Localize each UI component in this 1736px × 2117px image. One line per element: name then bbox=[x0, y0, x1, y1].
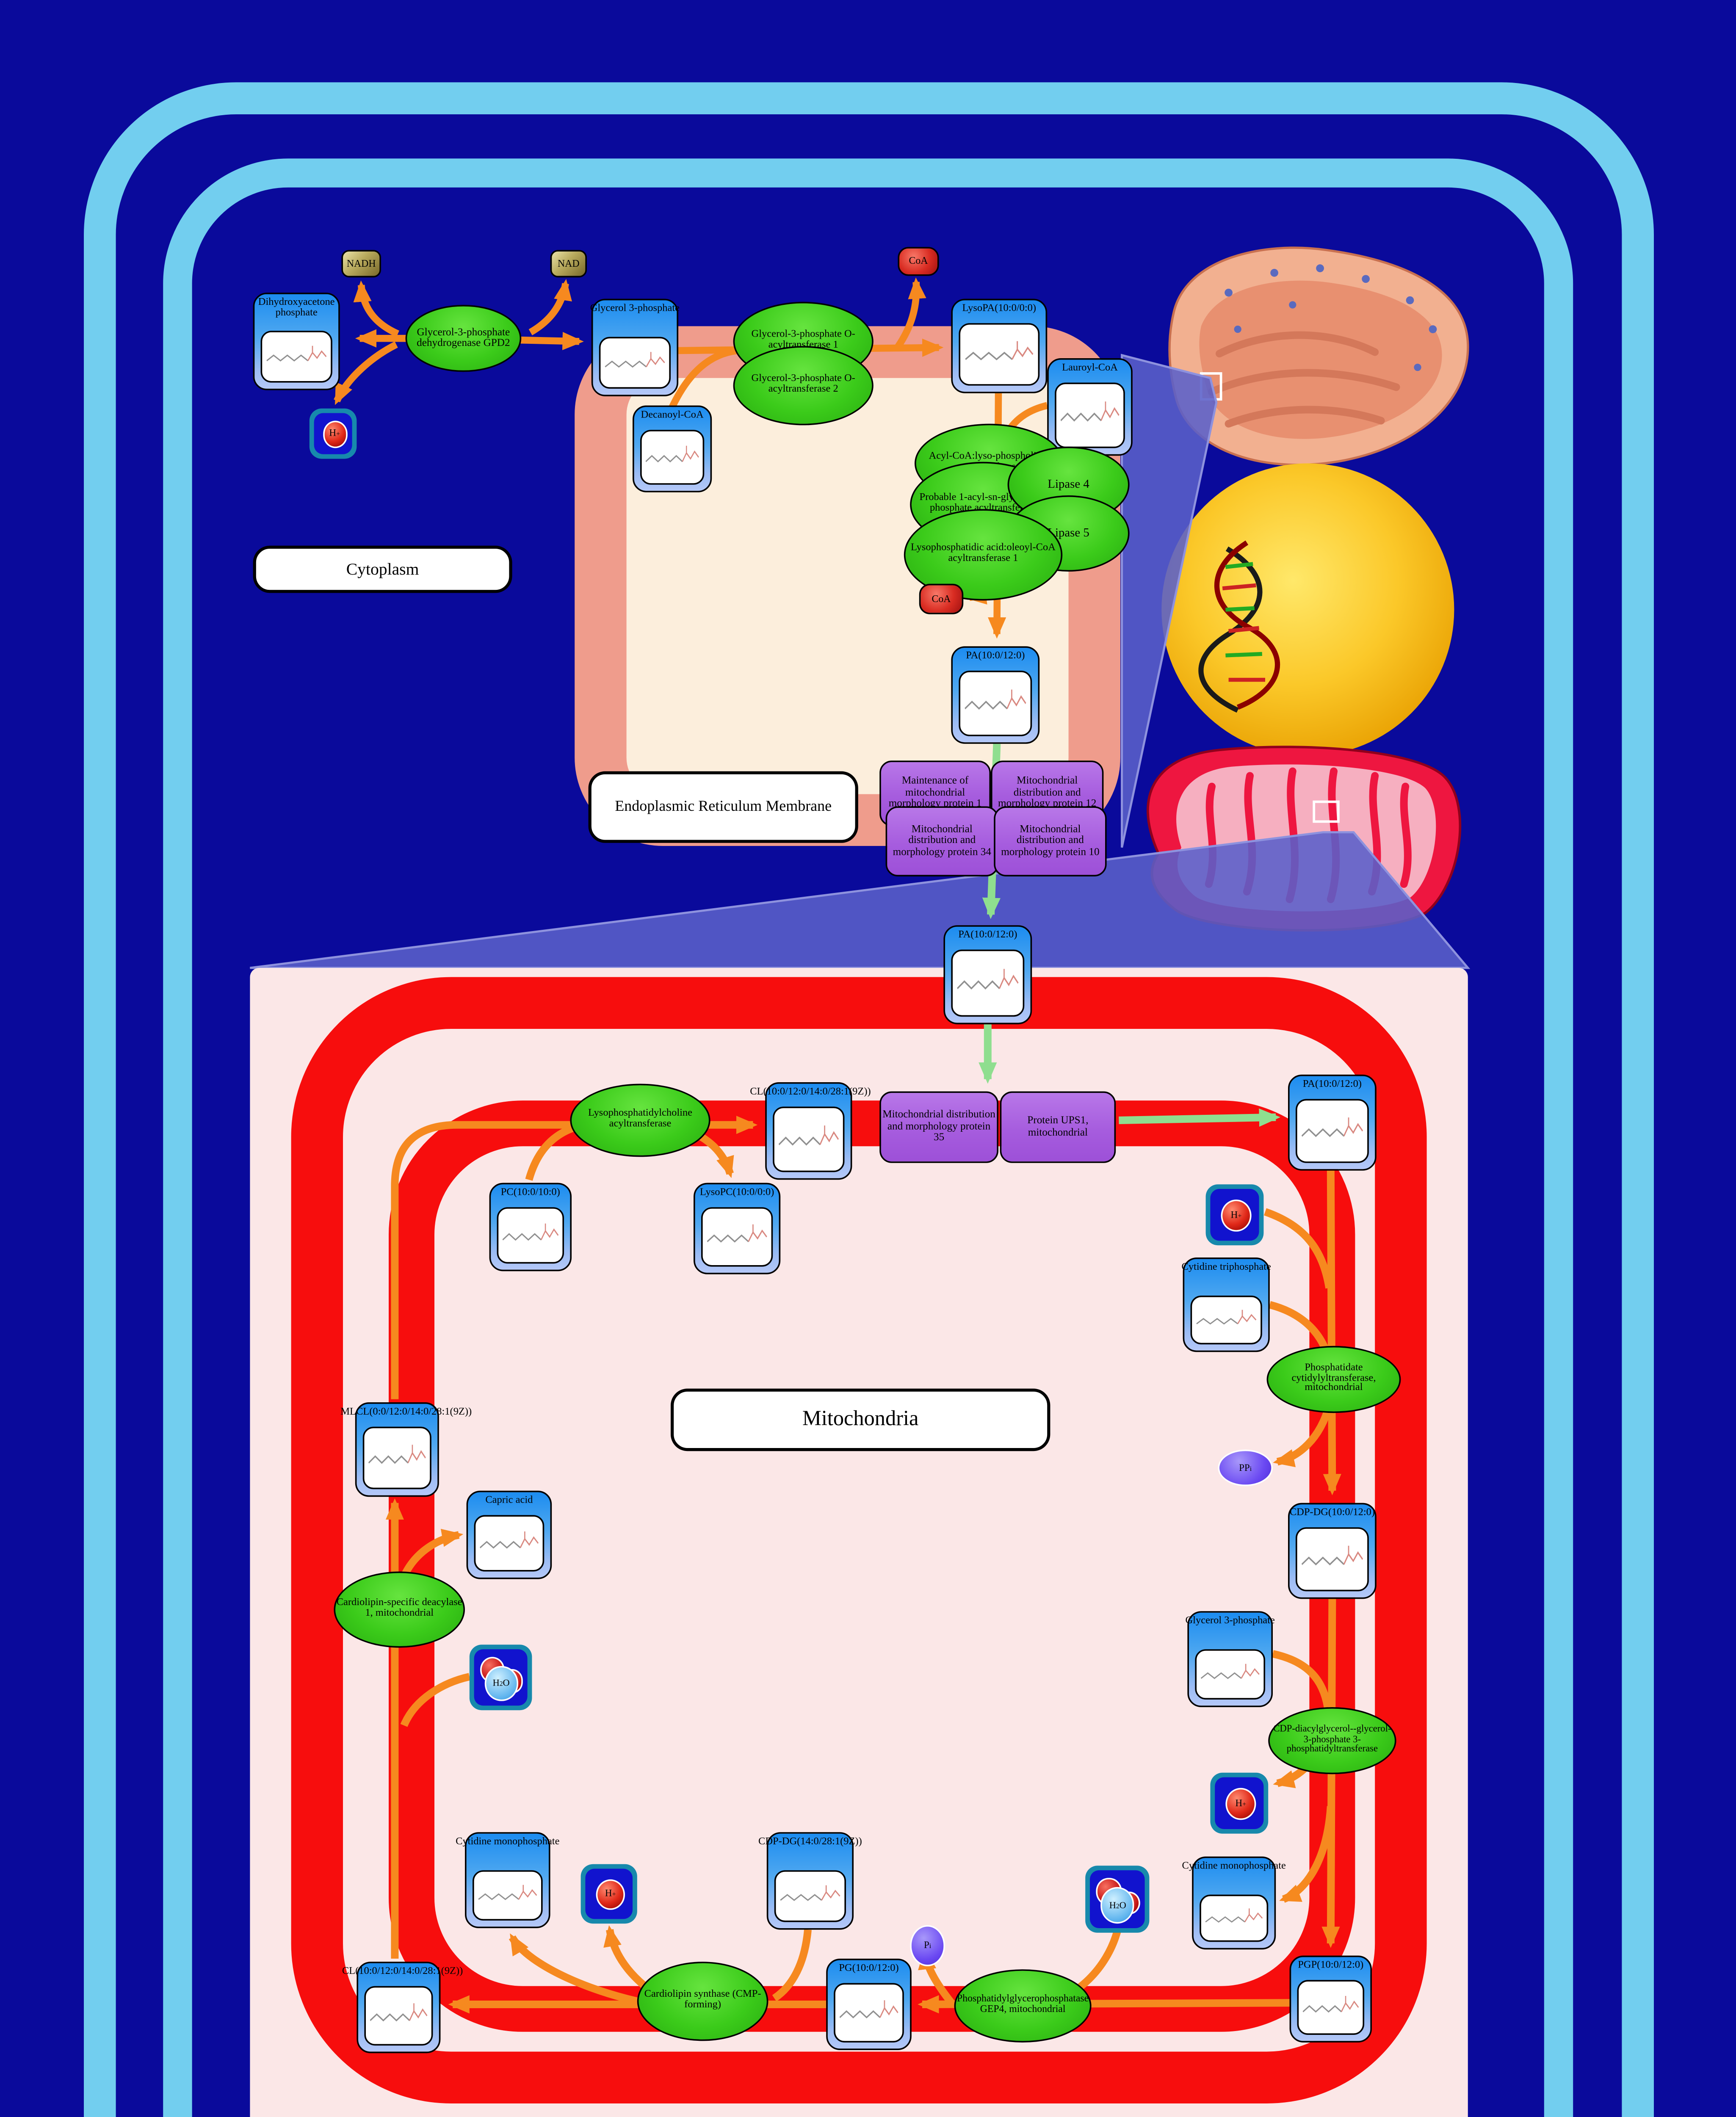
metabolite-label: LysoPC(10:0/0:0) bbox=[678, 1187, 796, 1198]
metabolite-cmp-right[interactable]: Cytidine monophosphate bbox=[1192, 1857, 1276, 1950]
badge-label: CoA bbox=[932, 594, 951, 604]
structure-thumbnail bbox=[774, 1870, 846, 1922]
metabolite-pgp[interactable]: PGP(10:0/12:0) bbox=[1290, 1956, 1372, 2042]
metabolite-decanoyl-coa[interactable]: Decanoyl-CoA bbox=[633, 406, 712, 492]
structure-thumbnail bbox=[959, 671, 1032, 736]
structure-thumbnail bbox=[363, 1427, 431, 1490]
enzyme-label: Phosphatidate cytidylyltransferase, mito… bbox=[1268, 1364, 1399, 1396]
structure-thumbnail bbox=[1296, 1099, 1369, 1163]
structure-thumbnail bbox=[773, 1107, 844, 1172]
enzyme-lpcat[interactable]: Lysophosphatidylcholine acyltransferase bbox=[570, 1084, 710, 1157]
proton-sphere: H+ bbox=[322, 421, 347, 448]
metabolite-mlcl[interactable]: MLCL(0:0/12:0/14:0/28:1(9Z)) bbox=[355, 1402, 439, 1497]
enzyme-gpd2[interactable]: Glycerol-3-phosphate dehydrogenase GPD2 bbox=[406, 305, 522, 372]
metabolite-label: CL(10:0/12:0/14:0/28:1(9Z)) bbox=[342, 1966, 455, 1977]
metabolite-g3p-er[interactable]: Glycerol 3-phosphate bbox=[592, 299, 678, 396]
enzyme-crls1[interactable]: Cardiolipin synthase (CMP-forming) bbox=[637, 1962, 768, 2041]
badge-h-plus-cyto[interactable]: H+ bbox=[310, 409, 357, 459]
metabolite-label: MLCL(0:0/12:0/14:0/28:1(9Z)) bbox=[340, 1407, 453, 1418]
metabolite-pg[interactable]: PG(10:0/12:0) bbox=[826, 1959, 912, 2050]
protein-label: Mitochondrial distribution and morpholog… bbox=[995, 824, 1105, 858]
structure-thumbnail bbox=[261, 331, 332, 382]
metabolite-label: Cytidine triphosphate bbox=[1168, 1262, 1285, 1273]
metabolite-capric-acid[interactable]: Capric acid bbox=[467, 1491, 552, 1579]
badge-h-plus-right-1[interactable]: H+ bbox=[1206, 1184, 1264, 1245]
metabolite-pa-er[interactable]: PA(10:0/12:0) bbox=[951, 646, 1039, 743]
metabolite-label: Cytidine monophosphate bbox=[450, 1837, 565, 1848]
proton-badge-body: H+ bbox=[1215, 1777, 1263, 1829]
water-badge-body: H2O bbox=[1090, 1870, 1145, 1928]
mitochondria-label-text: Mitochondria bbox=[802, 1408, 918, 1432]
metabolite-label: LysoPA(10:0/0:0) bbox=[934, 303, 1064, 314]
metabolite-lysopc[interactable]: LysoPC(10:0/0:0) bbox=[694, 1183, 780, 1274]
pathway-canvas: Dihydroxyacetone phosphateGlycerol 3-pho… bbox=[0, 0, 1736, 2117]
enzyme-gpat2[interactable]: Glycerol-3-phosphate O-acyltransferase 2 bbox=[733, 346, 874, 425]
enzyme-label: Cardiolipin-specific deacylase 1, mitoch… bbox=[335, 1599, 463, 1620]
enzyme-cld1[interactable]: Cardiolipin-specific deacylase 1, mitoch… bbox=[334, 1572, 465, 1648]
pathway-nodes: Dihydroxyacetone phosphateGlycerol 3-pho… bbox=[0, 0, 1736, 2117]
proton-badge-body: H+ bbox=[1210, 1189, 1259, 1241]
water-sphere: H2O bbox=[485, 1666, 518, 1701]
mitochondria-label: Mitochondria bbox=[671, 1389, 1050, 1451]
metabolite-cl-bottom[interactable]: CL(10:0/12:0/14:0/28:1(9Z)) bbox=[357, 1962, 440, 2053]
protein-label: Maintenance of mitochondrial morphology … bbox=[881, 777, 990, 810]
cytoplasm-label: Cytoplasm bbox=[253, 546, 512, 593]
metabolite-pa-om[interactable]: PA(10:0/12:0) bbox=[943, 925, 1032, 1024]
structure-thumbnail bbox=[640, 430, 704, 485]
structure-thumbnail bbox=[1296, 1527, 1369, 1591]
proton-sphere: H+ bbox=[1226, 1788, 1256, 1820]
badge-nadh[interactable]: NADH bbox=[341, 250, 381, 277]
badge-h2o-left[interactable]: H2O bbox=[470, 1644, 532, 1710]
metabolite-label: PA(10:0/12:0) bbox=[1272, 1079, 1392, 1090]
metabolite-label: Lauroyl-CoA bbox=[1032, 363, 1147, 374]
metabolite-label: PA(10:0/12:0) bbox=[936, 651, 1055, 662]
metabolite-cdp-dg-left[interactable]: CDP-DG(14:0/28:1(9Z)) bbox=[767, 1832, 854, 1929]
water-sphere: H2O bbox=[1101, 1888, 1135, 1923]
metabolite-label: PGP(10:0/12:0) bbox=[1275, 1960, 1386, 1971]
structure-thumbnail bbox=[701, 1207, 773, 1266]
er-membrane-label: Endoplasmic Reticulum Membrane bbox=[589, 771, 858, 843]
structure-thumbnail bbox=[599, 337, 671, 389]
protein-mdm10[interactable]: Mitochondrial distribution and morpholog… bbox=[994, 806, 1106, 876]
badge-pi[interactable]: Pi bbox=[910, 1925, 945, 1966]
enzyme-label: Glycerol-3-phosphate O-acyltransferase 2 bbox=[735, 375, 872, 396]
badge-coa-top[interactable]: CoA bbox=[898, 247, 939, 276]
structure-thumbnail bbox=[474, 1515, 545, 1571]
badge-nad[interactable]: NAD bbox=[550, 250, 587, 277]
badge-h-plus-right-2[interactable]: H+ bbox=[1210, 1773, 1268, 1834]
metabolite-label: Glycerol 3-phosphate bbox=[576, 303, 694, 314]
structure-thumbnail bbox=[1195, 1649, 1265, 1700]
enzyme-pgs1[interactable]: CDP-diacylglycerol--glycerol-3-phosphate… bbox=[1268, 1707, 1396, 1774]
proton-badge-body: H+ bbox=[585, 1869, 633, 1919]
badge-label: CoA bbox=[909, 256, 928, 267]
structure-thumbnail bbox=[1200, 1895, 1268, 1942]
structure-thumbnail bbox=[834, 1983, 904, 2042]
metabolite-label: Dihydroxyacetone phosphate bbox=[238, 297, 355, 319]
metabolite-cl-top[interactable]: CL(10:0/12:0/14:0/28:1(9Z)) bbox=[765, 1082, 852, 1180]
badge-label: NADH bbox=[347, 258, 376, 269]
proton-badge-body: H+ bbox=[314, 413, 352, 454]
protein-label: Mitochondrial distribution and morpholog… bbox=[881, 1110, 997, 1144]
metabolite-label: Cytidine monophosphate bbox=[1178, 1861, 1291, 1872]
metabolite-cmp-left[interactable]: Cytidine monophosphate bbox=[465, 1832, 550, 1928]
metabolite-label: Glycerol 3-phosphate bbox=[1172, 1616, 1288, 1627]
structure-thumbnail bbox=[959, 323, 1039, 386]
metabolite-lysopa[interactable]: LysoPA(10:0/0:0) bbox=[951, 299, 1047, 393]
protein-ups1[interactable]: Protein UPS1, mitochondrial bbox=[1000, 1092, 1116, 1163]
enzyme-label: Phosphatidylglycerophosphatase GEP4, mit… bbox=[956, 1995, 1090, 2016]
metabolite-lauroyl-coa[interactable]: Lauroyl-CoA bbox=[1047, 358, 1133, 456]
protein-mdm34[interactable]: Mitochondrial distribution and morpholog… bbox=[886, 806, 998, 876]
enzyme-label: Cardiolipin synthase (CMP-forming) bbox=[639, 1991, 766, 2012]
protein-label: Mitochondrial distribution and morpholog… bbox=[887, 824, 997, 858]
enzyme-tamm41[interactable]: Phosphatidate cytidylyltransferase, mito… bbox=[1267, 1346, 1401, 1413]
proton-sphere: H+ bbox=[596, 1879, 625, 1910]
metabolite-pc[interactable]: PC(10:0/10:0) bbox=[489, 1183, 572, 1271]
metabolite-label: CDP-DG(10:0/12:0) bbox=[1272, 1507, 1392, 1518]
enzyme-label: CDP-diacylglycerol--glycerol-3-phosphate… bbox=[1270, 1726, 1395, 1755]
badge-coa-er[interactable]: CoA bbox=[919, 584, 963, 614]
protein-mdm35[interactable]: Mitochondrial distribution and morpholog… bbox=[879, 1092, 998, 1163]
enzyme-label: Lysophosphatidylcholine acyltransferase bbox=[572, 1110, 709, 1131]
structure-thumbnail bbox=[1055, 383, 1125, 448]
metabolite-cdp-dg-right[interactable]: CDP-DG(10:0/12:0) bbox=[1288, 1503, 1377, 1599]
metabolite-label: PA(10:0/12:0) bbox=[928, 930, 1048, 941]
metabolite-label: CDP-DG(14:0/28:1(9Z)) bbox=[752, 1837, 869, 1848]
badge-ppi[interactable]: PPi bbox=[1218, 1450, 1273, 1486]
structure-thumbnail bbox=[1297, 1980, 1364, 2035]
structure-thumbnail bbox=[473, 1870, 543, 1921]
cytoplasm-label-text: Cytoplasm bbox=[346, 560, 419, 578]
protein-label: Mitochondrial distribution and morpholog… bbox=[992, 777, 1102, 810]
enzyme-label: Lipase 4 bbox=[1048, 478, 1089, 491]
metabolite-g3p-mito[interactable]: Glycerol 3-phosphate bbox=[1187, 1611, 1273, 1707]
enzyme-label: Lysophosphatidic acid:oleoyl-CoA acyltra… bbox=[905, 544, 1061, 565]
enzyme-label: Glycerol-3-phosphate dehydrogenase GPD2 bbox=[407, 328, 520, 349]
er-membrane-label-text: Endoplasmic Reticulum Membrane bbox=[615, 799, 832, 815]
structure-thumbnail bbox=[364, 1986, 433, 2045]
structure-thumbnail bbox=[951, 950, 1024, 1017]
badge-h-plus-bottom[interactable]: H+ bbox=[581, 1864, 637, 1924]
protein-label: Protein UPS1, mitochondrial bbox=[1001, 1116, 1114, 1139]
badge-h2o-right[interactable]: H2O bbox=[1085, 1866, 1149, 1932]
metabolite-dhap[interactable]: Dihydroxyacetone phosphate bbox=[253, 293, 340, 390]
metabolite-label: Decanoyl-CoA bbox=[619, 410, 726, 421]
badge-label: NAD bbox=[558, 258, 579, 269]
structure-thumbnail bbox=[497, 1207, 564, 1263]
metabolite-label: Capric acid bbox=[451, 1495, 567, 1506]
metabolite-label: PG(10:0/12:0) bbox=[811, 1963, 926, 1974]
metabolite-label: CL(10:0/12:0/14:0/28:1(9Z)) bbox=[750, 1087, 867, 1098]
proton-sphere: H+ bbox=[1221, 1199, 1252, 1231]
metabolite-pa-im[interactable]: PA(10:0/12:0) bbox=[1288, 1075, 1377, 1171]
metabolite-label: PC(10:0/10:0) bbox=[475, 1187, 586, 1198]
water-badge-body: H2O bbox=[474, 1649, 528, 1705]
enzyme-gep4[interactable]: Phosphatidylglycerophosphatase GEP4, mit… bbox=[954, 1969, 1092, 2042]
metabolite-ctp[interactable]: Cytidine triphosphate bbox=[1183, 1257, 1270, 1352]
structure-thumbnail bbox=[1191, 1296, 1262, 1344]
